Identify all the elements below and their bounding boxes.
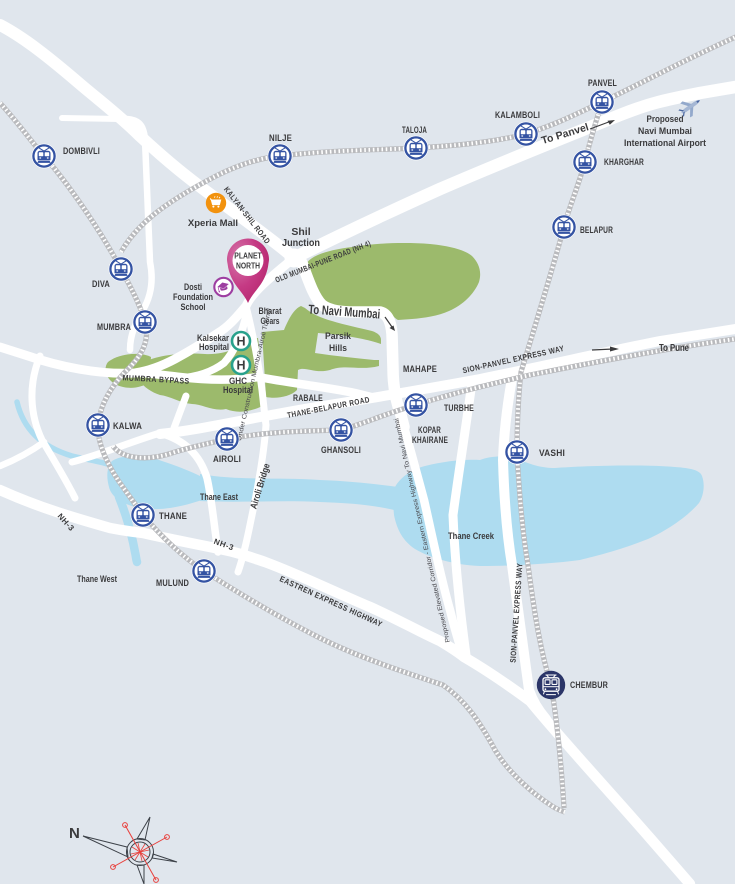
- svg-text:Parsik: Parsik: [325, 331, 352, 342]
- svg-text:Hospital: Hospital: [223, 385, 253, 396]
- svg-text:KHAIRANE: KHAIRANE: [412, 435, 448, 446]
- svg-text:MUMBRA: MUMBRA: [97, 322, 131, 333]
- svg-text:Proposed: Proposed: [647, 114, 684, 125]
- svg-text:To Pune: To Pune: [659, 342, 689, 354]
- svg-text:KHARGHAR: KHARGHAR: [604, 157, 644, 168]
- svg-text:Thane East: Thane East: [200, 492, 239, 503]
- svg-text:Thane Creek: Thane Creek: [448, 531, 495, 542]
- svg-text:Navi Mumbai: Navi Mumbai: [638, 126, 692, 137]
- svg-text:Hospital: Hospital: [199, 342, 229, 353]
- svg-text:VASHI: VASHI: [539, 448, 565, 459]
- svg-text:PANVEL: PANVEL: [588, 78, 617, 89]
- svg-text:School: School: [181, 302, 206, 313]
- svg-text:Gears: Gears: [261, 316, 280, 327]
- svg-text:PLANET: PLANET: [234, 251, 262, 261]
- svg-text:MAHAPE: MAHAPE: [403, 364, 437, 375]
- svg-text:NORTH: NORTH: [236, 261, 260, 271]
- svg-text:International Airport: International Airport: [624, 138, 707, 149]
- svg-text:MULUND: MULUND: [156, 578, 189, 589]
- svg-text:KALAMBOLI: KALAMBOLI: [495, 110, 540, 121]
- svg-text:Thane West: Thane West: [77, 574, 118, 585]
- svg-text:THANE: THANE: [159, 511, 187, 522]
- svg-text:AIROLI: AIROLI: [213, 454, 241, 465]
- svg-text:BELAPUR: BELAPUR: [580, 225, 613, 236]
- svg-text:Junction: Junction: [282, 237, 320, 249]
- svg-text:TURBHE: TURBHE: [444, 403, 474, 414]
- svg-text:NILJE: NILJE: [269, 133, 292, 144]
- svg-text:DIVA: DIVA: [92, 279, 110, 290]
- svg-text:TALOJA: TALOJA: [402, 125, 427, 136]
- svg-text:Hills: Hills: [329, 343, 347, 354]
- svg-text:DOMBIVLI: DOMBIVLI: [63, 146, 100, 157]
- svg-text:Xperia Mall: Xperia Mall: [188, 218, 238, 229]
- svg-text:N: N: [69, 825, 80, 842]
- svg-text:CHEMBUR: CHEMBUR: [570, 680, 608, 691]
- svg-text:KALWA: KALWA: [113, 421, 142, 432]
- svg-text:GHANSOLI: GHANSOLI: [321, 445, 361, 456]
- svg-text:RABALE: RABALE: [293, 393, 323, 404]
